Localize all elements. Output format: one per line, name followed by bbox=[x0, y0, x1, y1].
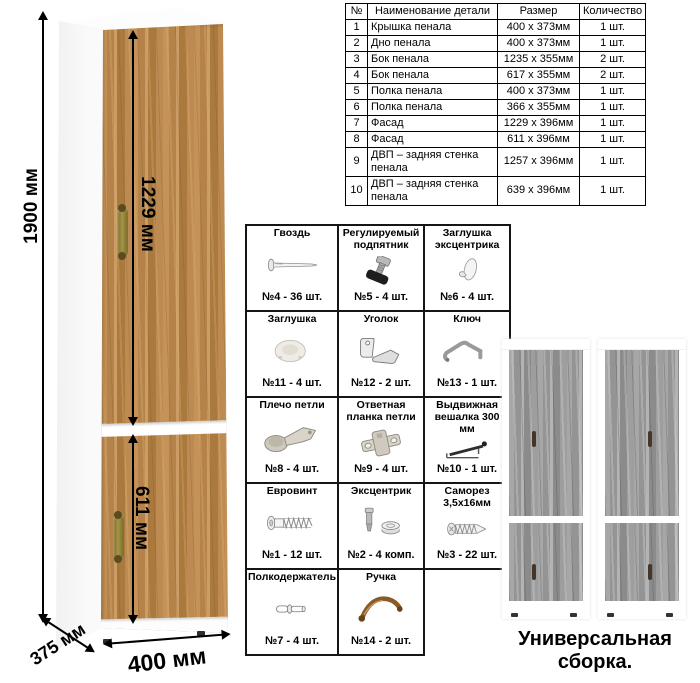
part-name: Полка пенала bbox=[368, 99, 498, 115]
hardware-item: Полкодержатель №7 - 4 шт. bbox=[246, 569, 338, 655]
hinge-plate-icon bbox=[353, 424, 409, 464]
hardware-item-name: Заглушка эксцентрика bbox=[426, 228, 508, 252]
hinge-arm-icon bbox=[262, 412, 322, 463]
hardware-item: Выдвижная вешалка 300 мм №10 - 1 шт. bbox=[424, 397, 510, 483]
cabinet-side-panel bbox=[55, 18, 105, 652]
table-row: 9ДВП – задняя стенка пенала1257 х 396мм1… bbox=[346, 147, 646, 176]
hardware-item: Плечо петли №8 - 4 шт. bbox=[246, 397, 338, 483]
part-qty: 2 шт. bbox=[580, 51, 646, 67]
part-qty: 1 шт. bbox=[580, 131, 646, 147]
hardware-item: Саморез 3,5х16мм №3 - 22 шт. bbox=[424, 483, 510, 569]
part-qty: 1 шт. bbox=[580, 99, 646, 115]
part-num: 3 bbox=[346, 51, 368, 67]
hardware-item-count: №8 - 4 шт. bbox=[265, 463, 319, 476]
height-dimension-arrow bbox=[37, 12, 49, 622]
hardware-item-name: Эксцентрик bbox=[351, 486, 411, 498]
variant-cabinet-right bbox=[598, 339, 686, 619]
part-qty: 1 шт. bbox=[580, 115, 646, 131]
part-num: 8 bbox=[346, 131, 368, 147]
part-size: 366 х 355мм bbox=[498, 99, 580, 115]
hardware-item-count: №13 - 1 шт. bbox=[437, 377, 497, 390]
variant-lower-door bbox=[605, 523, 679, 601]
cabinet-foot bbox=[607, 613, 614, 617]
table-row: 4Бок пенала617 х 355мм2 шт. bbox=[346, 67, 646, 83]
variant-door-handle bbox=[532, 431, 536, 447]
lower-door-handle bbox=[113, 514, 124, 560]
cam-lock-icon bbox=[353, 498, 409, 549]
part-name: Бок пенала bbox=[368, 51, 498, 67]
cam-cover-icon bbox=[439, 252, 495, 292]
upper-door-dimension-label: 1229 мм bbox=[136, 171, 158, 257]
part-qty: 1 шт. bbox=[580, 19, 646, 35]
handle-icon bbox=[351, 584, 411, 635]
door-gap bbox=[99, 420, 231, 437]
lower-door-dimension-label: 611 мм bbox=[130, 485, 152, 551]
nail-icon bbox=[261, 240, 323, 291]
parts-table: № Наименование детали Размер Количество … bbox=[345, 3, 646, 206]
part-size: 611 х 396мм bbox=[498, 131, 580, 147]
hardware-item-name: Ручка bbox=[366, 572, 396, 584]
hardware-item-count: №9 - 4 шт. bbox=[354, 463, 408, 476]
hardware-item-name: Ключ bbox=[453, 314, 481, 326]
hardware-item: Заглушка №11 - 4 шт. bbox=[246, 311, 338, 397]
variant-door-handle bbox=[648, 564, 652, 580]
part-name: ДВП – задняя стенка пенала bbox=[368, 147, 498, 176]
part-size: 400 х 373мм bbox=[498, 19, 580, 35]
table-row: 2Дно пенала400 х 373мм1 шт. bbox=[346, 35, 646, 51]
variant-upper-door bbox=[509, 350, 583, 516]
hardware-item-count: №3 - 22 шт. bbox=[437, 549, 497, 562]
hardware-item: Заглушка эксцентрика №6 - 4 шт. bbox=[424, 225, 510, 311]
col-header-number: № bbox=[346, 4, 368, 20]
hardware-item-count: №2 - 4 комп. bbox=[348, 549, 415, 562]
hex-key-icon bbox=[438, 326, 496, 377]
part-size: 1229 х 396мм bbox=[498, 115, 580, 131]
cabinet-foot bbox=[666, 613, 673, 617]
hardware-item-count: №1 - 12 шт. bbox=[262, 549, 322, 562]
hardware-item-count: №11 - 4 шт. bbox=[262, 377, 322, 390]
height-dimension-label: 1900 мм bbox=[21, 163, 43, 249]
self-tapping-screw-icon bbox=[438, 510, 496, 550]
hardware-item-name: Саморез 3,5х16мм bbox=[426, 486, 508, 510]
part-qty: 1 шт. bbox=[580, 147, 646, 176]
part-num: 7 bbox=[346, 115, 368, 131]
part-num: 10 bbox=[346, 176, 368, 205]
parts-table-header-row: № Наименование детали Размер Количество bbox=[346, 4, 646, 20]
hardware-item-name: Евровинт bbox=[267, 486, 318, 498]
hardware-item: Ответная планка петли №9 - 4 шт. bbox=[338, 397, 424, 483]
cabinet-foot bbox=[511, 613, 518, 617]
hardware-item-name: Плечо петли bbox=[259, 400, 324, 412]
variant-door-handle bbox=[648, 431, 652, 447]
part-num: 1 bbox=[346, 19, 368, 35]
part-name: Фасад bbox=[368, 131, 498, 147]
hardware-item: Уголок №12 - 2 шт. bbox=[338, 311, 424, 397]
table-row: 5Полка пенала400 х 373мм1 шт. bbox=[346, 83, 646, 99]
part-size: 639 х 396мм bbox=[498, 176, 580, 205]
hardware-row: Полкодержатель №7 - 4 шт. Ручка №14 - 2 … bbox=[246, 569, 510, 655]
table-row: 6Полка пенала366 х 355мм1 шт. bbox=[346, 99, 646, 115]
part-name: Дно пенала bbox=[368, 35, 498, 51]
col-header-size: Размер bbox=[498, 4, 580, 20]
part-qty: 2 шт. bbox=[580, 67, 646, 83]
universal-assembly-caption: Универсальная сборка. bbox=[488, 628, 700, 674]
cabinet-foot bbox=[570, 613, 577, 617]
part-size: 400 х 373мм bbox=[498, 35, 580, 51]
hardware-grid: Гвоздь №4 - 36 шт. Регулируемый подпятни… bbox=[245, 224, 511, 656]
part-num: 9 bbox=[346, 147, 368, 176]
variant-lower-door bbox=[509, 523, 583, 601]
part-size: 1257 х 396мм bbox=[498, 147, 580, 176]
hardware-item: Ручка №14 - 2 шт. bbox=[338, 569, 424, 655]
hardware-item: Эксцентрик №2 - 4 комп. bbox=[338, 483, 424, 569]
hardware-item-count: №12 - 2 шт. bbox=[351, 377, 411, 390]
adjustable-foot-icon bbox=[353, 252, 409, 292]
hardware-item-count: №4 - 36 шт. bbox=[262, 291, 322, 304]
hardware-item: Гвоздь №4 - 36 шт. bbox=[246, 225, 338, 311]
part-num: 2 bbox=[346, 35, 368, 51]
hardware-item-name: Заглушка bbox=[268, 314, 317, 326]
part-name: ДВП – задняя стенка пенала bbox=[368, 176, 498, 205]
hardware-item-count: №5 - 4 шт. bbox=[354, 291, 408, 304]
variant-door-handle bbox=[532, 564, 536, 580]
hardware-row: Плечо петли №8 - 4 шт. Ответная планка п… bbox=[246, 397, 510, 483]
part-name: Фасад bbox=[368, 115, 498, 131]
hardware-item-name: Ответная планка петли bbox=[340, 400, 422, 424]
hardware-item-name: Уголок bbox=[364, 314, 399, 326]
hardware-item: Евровинт №1 - 12 шт. bbox=[246, 483, 338, 569]
col-header-qty: Количество bbox=[580, 4, 646, 20]
euro-screw-icon bbox=[261, 498, 323, 549]
part-name: Полка пенала bbox=[368, 83, 498, 99]
part-name: Крышка пенала bbox=[368, 19, 498, 35]
hardware-item-count: №14 - 2 шт. bbox=[351, 635, 411, 648]
part-size: 1235 х 355мм bbox=[498, 51, 580, 67]
shelf-pin-icon bbox=[263, 584, 321, 635]
part-num: 5 bbox=[346, 83, 368, 99]
hardware-item-count: №10 - 1 шт. bbox=[437, 463, 497, 476]
plug-icon bbox=[263, 326, 321, 377]
assembly-sheet: 1900 мм 1229 мм 611 мм 375 мм 400 мм № Н… bbox=[0, 0, 700, 683]
hardware-item-count: №7 - 4 шт. bbox=[265, 635, 319, 648]
table-row: 3Бок пенала1235 х 355мм2 шт. bbox=[346, 51, 646, 67]
hardware-row: Евровинт №1 - 12 шт. Эксцентрик bbox=[246, 483, 510, 569]
hardware-item: Ключ №13 - 1 шт. bbox=[424, 311, 510, 397]
variant-upper-door bbox=[605, 350, 679, 516]
col-header-name: Наименование детали bbox=[368, 4, 498, 20]
hardware-row: Заглушка №11 - 4 шт. Уголок №12 - 2 шт. … bbox=[246, 311, 510, 397]
variant-cabinet-left bbox=[502, 339, 590, 619]
part-qty: 1 шт. bbox=[580, 176, 646, 205]
part-num: 6 bbox=[346, 99, 368, 115]
hardware-item-name: Полкодержатель bbox=[248, 572, 336, 584]
table-row: 10ДВП – задняя стенка пенала639 х 396мм1… bbox=[346, 176, 646, 205]
part-qty: 1 шт. bbox=[580, 83, 646, 99]
pullout-hanger-icon bbox=[437, 435, 497, 463]
hardware-row: Гвоздь №4 - 36 шт. Регулируемый подпятни… bbox=[246, 225, 510, 311]
hardware-item-name: Выдвижная вешалка 300 мм bbox=[426, 400, 508, 435]
hardware-item-name: Гвоздь bbox=[274, 228, 311, 240]
part-size: 400 х 373мм bbox=[498, 83, 580, 99]
part-qty: 1 шт. bbox=[580, 35, 646, 51]
corner-bracket-icon bbox=[352, 326, 410, 377]
hardware-item: Регулируемый подпятник №5 - 4 шт. bbox=[338, 225, 424, 311]
cabinet-front bbox=[101, 24, 228, 634]
table-row: 1Крышка пенала400 х 373мм1 шт. bbox=[346, 19, 646, 35]
hardware-item-name: Регулируемый подпятник bbox=[340, 228, 422, 252]
hardware-item-count: №6 - 4 шт. bbox=[440, 291, 494, 304]
table-row: 8Фасад611 х 396мм1 шт. bbox=[346, 131, 646, 147]
part-size: 617 х 355мм bbox=[498, 67, 580, 83]
part-num: 4 bbox=[346, 67, 368, 83]
part-name: Бок пенала bbox=[368, 67, 498, 83]
table-row: 7Фасад1229 х 396мм1 шт. bbox=[346, 115, 646, 131]
